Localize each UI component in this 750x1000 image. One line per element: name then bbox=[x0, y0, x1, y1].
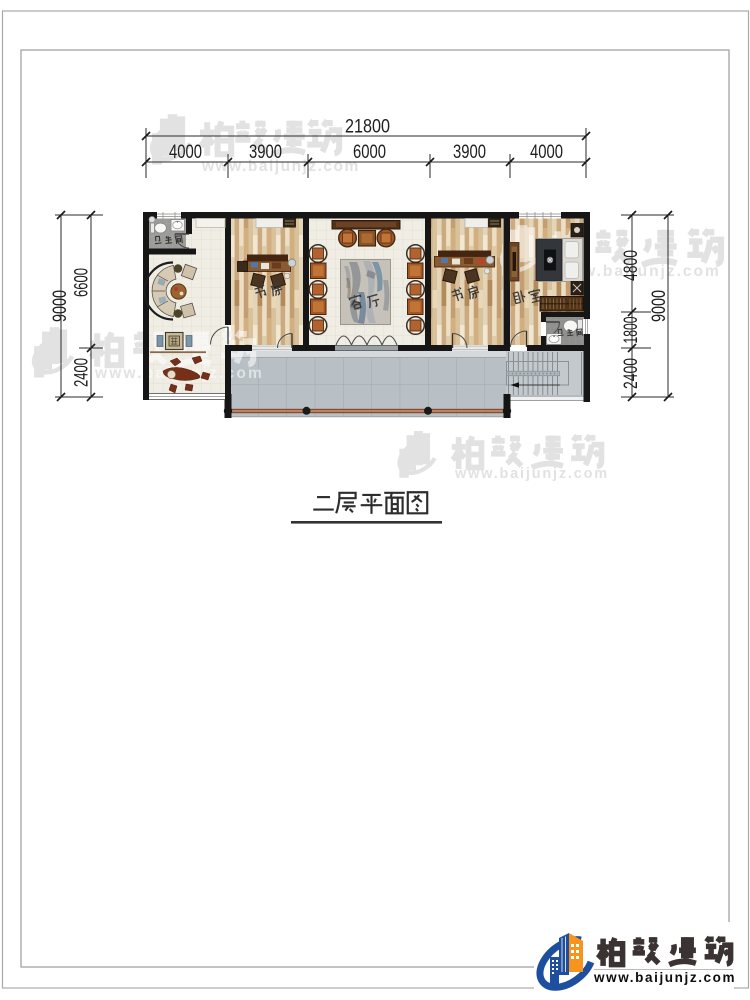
svg-text:9000: 9000 bbox=[649, 290, 670, 322]
svg-text:3900: 3900 bbox=[453, 142, 486, 163]
svg-text:3900: 3900 bbox=[249, 142, 282, 163]
svg-text:2400: 2400 bbox=[72, 358, 93, 387]
svg-text:4000: 4000 bbox=[530, 142, 563, 163]
svg-text:9000: 9000 bbox=[50, 290, 71, 322]
svg-text:www.baijunjz.com: www.baijunjz.com bbox=[593, 970, 736, 985]
svg-text:6000: 6000 bbox=[353, 142, 386, 163]
svg-text:4800: 4800 bbox=[621, 250, 642, 281]
svg-text:21800: 21800 bbox=[345, 117, 390, 138]
svg-text:1800: 1800 bbox=[621, 317, 642, 344]
svg-text:6600: 6600 bbox=[72, 268, 93, 297]
svg-text:2400: 2400 bbox=[621, 358, 642, 389]
svg-text:4000: 4000 bbox=[169, 142, 202, 163]
